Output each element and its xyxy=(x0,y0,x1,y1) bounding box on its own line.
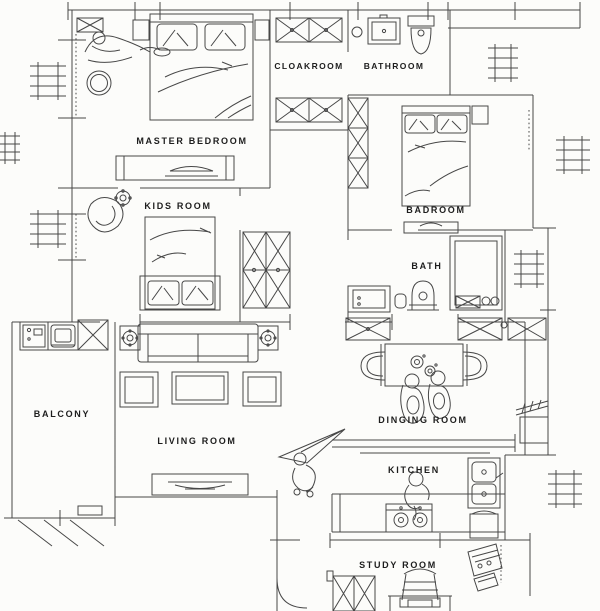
round-stool xyxy=(87,71,111,95)
master-bed xyxy=(150,14,253,120)
terrace-hatch xyxy=(18,520,104,546)
paper-plane xyxy=(279,429,345,463)
person-figure xyxy=(293,453,316,497)
room-label-bath: BATH xyxy=(411,261,442,271)
waste-bin xyxy=(395,294,406,308)
tv-console xyxy=(152,474,248,495)
armchair xyxy=(120,372,158,407)
floor-plan-page: MASTER BEDROOM CLOAKROOM BATHROOM BADROO… xyxy=(0,0,600,611)
cabinet-x xyxy=(501,318,546,340)
room-label-dinging-room: DINGING ROOM xyxy=(378,415,467,425)
room-label-bathroom: BATHROOM xyxy=(364,61,425,71)
coffee-table xyxy=(172,372,228,404)
wardrobe-x xyxy=(276,18,342,42)
bath-toilet xyxy=(407,281,439,310)
seated-person-figure xyxy=(428,371,450,418)
badroom-bed xyxy=(402,106,470,206)
washing-machine xyxy=(48,322,78,350)
side-table-flower xyxy=(120,326,140,350)
service-cart xyxy=(470,511,498,538)
room-label-master-bedroom: MASTER BEDROOM xyxy=(136,136,247,146)
room-label-badroom: BADROOM xyxy=(406,205,465,215)
side-table-flower xyxy=(258,326,278,350)
closet-x-strip xyxy=(348,98,368,188)
dining-table xyxy=(381,344,467,386)
bench xyxy=(404,222,458,233)
door-swing xyxy=(277,578,307,608)
armchair xyxy=(243,372,281,406)
toilet xyxy=(408,16,434,54)
floor-plan-drawing xyxy=(0,0,600,611)
kitchen-sink xyxy=(468,458,503,508)
shower-cabin xyxy=(450,236,502,310)
room-label-kitchen: KITCHEN xyxy=(388,465,440,475)
drafting-table xyxy=(468,544,502,591)
nightstand xyxy=(472,106,488,124)
room-label-study-room: STUDY ROOM xyxy=(359,560,437,570)
air-conditioner-x-unit xyxy=(77,18,103,32)
wardrobe-x-4cell xyxy=(243,232,290,308)
cabinet-x xyxy=(78,320,108,350)
vanity-basin xyxy=(348,286,390,312)
bench-dresser xyxy=(116,156,234,180)
room-label-living-room: LIVING ROOM xyxy=(157,436,236,446)
planter xyxy=(78,506,102,515)
room-label-balcony: BALCONY xyxy=(34,409,90,419)
wash-basin xyxy=(368,15,400,44)
wardrobe-x xyxy=(276,98,342,122)
laundry-sink xyxy=(20,322,48,350)
drying-rack xyxy=(516,400,548,443)
nightstand xyxy=(133,20,149,40)
kids-bed xyxy=(140,217,220,310)
cabinet-x xyxy=(458,318,502,340)
flower-stool xyxy=(115,190,131,206)
room-label-kids-room: KIDS ROOM xyxy=(144,201,211,211)
nightstand xyxy=(255,20,269,40)
study-chair xyxy=(400,569,440,607)
gas-stove xyxy=(386,504,432,532)
room-label-cloakroom: CLOAKROOM xyxy=(274,61,343,71)
sofa xyxy=(138,324,258,362)
bookshelf-x xyxy=(327,571,375,611)
bar-counter xyxy=(332,434,515,453)
round-drain xyxy=(352,27,362,37)
cabinet-x xyxy=(346,318,390,340)
cooking-person-figure xyxy=(405,472,429,520)
